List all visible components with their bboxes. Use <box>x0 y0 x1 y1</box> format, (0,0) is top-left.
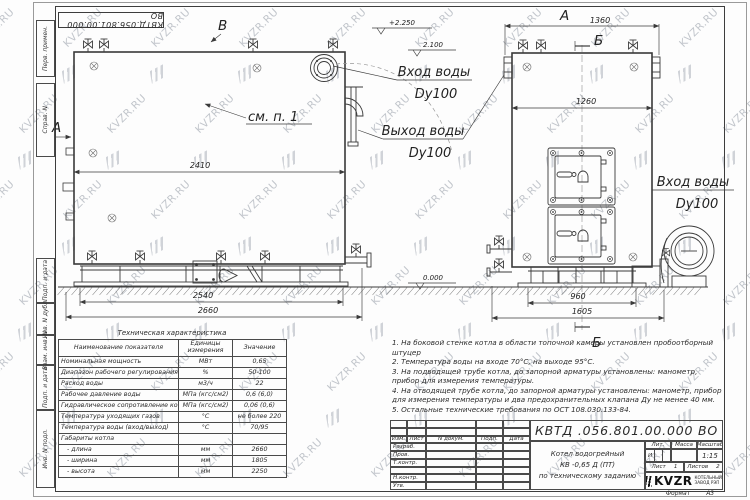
table-row: Температура воды (вход/выход)°С70/95 <box>59 423 287 434</box>
view-label-a-front: А <box>559 8 569 24</box>
signature-cell <box>476 451 503 459</box>
table-cell: - ширина <box>59 456 179 467</box>
valve-icon <box>629 40 638 53</box>
revision-cell <box>426 420 476 428</box>
sheet-value: 1 <box>674 464 678 470</box>
tech-characteristics: Техническая характеристика Наименование … <box>58 329 286 478</box>
table-cell: 2660 <box>233 445 287 456</box>
drawing-labels: А В см. п. 1 2410 2540 2660 Вход воды Dy… <box>51 8 729 351</box>
table-cell: 50-100 <box>233 368 287 379</box>
table-cell: Температура уходящих газов <box>59 412 179 423</box>
signature-cell <box>426 451 476 459</box>
note-line: 1. На боковой стенке котла в области топ… <box>392 338 724 357</box>
table-cell: МПа (кгс/см2) <box>179 401 233 412</box>
table-row: Рабочее давление водыМПа (кгс/см2)0,6 (6… <box>59 390 287 401</box>
lit-value: И <box>645 449 671 462</box>
table-cell <box>233 434 287 445</box>
notes-block: 1. На боковой стенке котла в области топ… <box>392 338 724 414</box>
note-line: 4. На отводящей трубе котла, до запорной… <box>392 386 724 405</box>
sheet-cell: Лист 1 <box>645 462 684 472</box>
revision-cell: Изм. <box>390 436 407 444</box>
sheet-label: Лист <box>652 464 666 470</box>
table-header-cell: Значение <box>233 340 287 357</box>
dim-1260: 1260 <box>576 97 596 106</box>
signature-row-label <box>390 467 426 475</box>
margin-stamp: Подп. и дата <box>36 365 55 410</box>
inlet-water-label: Вход воды <box>398 65 471 80</box>
dim-1605: 1605 <box>572 307 592 316</box>
table-cell: % <box>179 368 233 379</box>
table-cell: 0,06 (0,6) <box>233 401 287 412</box>
mass-value <box>671 449 697 462</box>
inlet-water-dn-front: Dy100 <box>676 197 719 212</box>
signature-cell <box>476 443 503 451</box>
view-label-v: В <box>218 18 227 34</box>
revision-cell <box>503 428 530 436</box>
table-cell: Расход воды <box>59 379 179 390</box>
format-row: Формат А3 <box>655 490 725 497</box>
table-row: Габариты котла <box>59 434 287 445</box>
product-name-line: по техническому заданию <box>539 471 636 482</box>
valve-icon <box>217 251 226 264</box>
table-cell: 22 <box>233 379 287 390</box>
safety-pipe <box>345 87 363 146</box>
table-header-row: Наименование показателя Единицы измерени… <box>59 340 287 357</box>
inlet-flange <box>311 55 338 82</box>
revision-cell <box>407 420 426 428</box>
valve-icon <box>136 251 145 264</box>
note-line: 2. Температура воды на входе 70°С, на вы… <box>392 357 724 367</box>
table-cell: 70/95 <box>233 423 287 434</box>
drain-valves <box>487 236 512 276</box>
signature-row-label: Т.контр. <box>390 459 426 467</box>
margin-stamp: Инв. N подл. <box>36 410 55 488</box>
note-line: 5. Остальные технические требования по О… <box>392 405 724 415</box>
doc-number: КВТД .056.801.00.000 ВО <box>530 420 723 441</box>
margin-stamp: Подп. и дата <box>36 258 55 303</box>
sheets-label: Листов <box>687 464 708 470</box>
table-cell: 0,6 (6,0) <box>233 390 287 401</box>
product-name-line: КВ -0,65 Д (ПТ) <box>560 460 615 471</box>
furnace-door-upper <box>548 148 615 205</box>
valve-icon <box>537 40 546 53</box>
signature-row-label: Н.контр. <box>390 474 426 482</box>
table-cell: Номинальная мощность <box>59 357 179 368</box>
signature-row-label: Разраб. <box>390 443 426 451</box>
valve-icon <box>84 39 93 52</box>
sheets-cell: Листов 2 <box>684 462 723 472</box>
table-row: - ширинамм1805 <box>59 456 287 467</box>
dim-1360: 1360 <box>590 16 610 25</box>
valve-icon <box>88 251 97 264</box>
table-cell: Диапазон рабочего регулирования <box>59 368 179 379</box>
table-row: Номинальная мощностьМВт0,65 <box>59 357 287 368</box>
margin-stamp-label: Справ. N <box>42 106 49 133</box>
inverted-doc-number-stamp: КВТД.056.801.00.000 ВО <box>58 12 164 28</box>
revision-cell: Подп. <box>476 436 503 444</box>
title-block: Изм.ЛистN докум.Подп.ДатаРазраб.Пров.Т.к… <box>390 420 723 490</box>
table-cell: мм <box>179 467 233 478</box>
company-name: КОТЕЛЬНЫЙ ЗАВОД РЭП <box>695 476 722 486</box>
product-name-line: Котел водогрейный <box>551 449 625 460</box>
inlet-water-dn: Dy100 <box>415 87 458 102</box>
signature-cell <box>476 459 503 467</box>
revision-cell: N докум. <box>426 436 476 444</box>
table-cell: МВт <box>179 357 233 368</box>
valve-icon <box>100 39 109 52</box>
table-cell: Гидравлическое сопротивление котла <box>59 401 179 412</box>
signature-cell <box>476 467 503 475</box>
scale-value: 1:15 <box>697 449 723 462</box>
revision-cell <box>476 428 503 436</box>
table-cell: МПа (кгс/см2) <box>179 390 233 401</box>
outlet-water-label: Выход воды <box>382 124 465 139</box>
revision-cell <box>390 420 407 428</box>
table-cell: °С <box>179 412 233 423</box>
boiler-body-side <box>74 52 345 264</box>
table-cell: - длина <box>59 445 179 456</box>
table-row: - высотамм2250 <box>59 467 287 478</box>
signature-cell <box>503 474 530 482</box>
revision-cell: Дата <box>503 436 530 444</box>
signature-cell <box>503 482 530 490</box>
margin-stamp-label: Подп. и дата <box>42 367 49 408</box>
signature-cell <box>426 459 476 467</box>
revision-cell <box>426 428 476 436</box>
dim-2410: 2410 <box>190 161 210 170</box>
margin-stamp: Справ. N <box>36 83 55 157</box>
furnace-door-lower <box>548 207 615 264</box>
tech-table: Наименование показателя Единицы измерени… <box>58 339 287 478</box>
table-cell: Рабочее давление воды <box>59 390 179 401</box>
elev-2250: +2.250 <box>389 19 415 27</box>
revision-cell <box>390 428 407 436</box>
signature-cell <box>426 443 476 451</box>
margin-stamp-label: Взам. инв. N <box>42 331 49 370</box>
kvzr-logo-icon <box>646 476 652 487</box>
revision-cell <box>476 420 503 428</box>
signature-cell <box>503 459 530 467</box>
signature-cell <box>426 482 476 490</box>
margin-stamp-label: Перв. примен. <box>42 26 49 71</box>
blower-fan <box>632 226 714 287</box>
table-cell: - высота <box>59 467 179 478</box>
valve-icon <box>329 39 338 52</box>
margin-stamp: Перв. примен. <box>36 20 55 77</box>
table-row: Температура уходящих газов°Сне более 220 <box>59 412 287 423</box>
section-label-b-top: Б <box>594 33 603 49</box>
table-cell: 0,65 <box>233 357 287 368</box>
valve-icon <box>519 40 528 53</box>
valve-icon <box>249 39 258 52</box>
tech-table-title: Техническая характеристика <box>58 329 286 337</box>
table-cell: 1805 <box>233 456 287 467</box>
signature-cell <box>426 474 476 482</box>
table-cell <box>179 434 233 445</box>
table-header-cell: Наименование показателя <box>59 340 179 357</box>
signature-cell <box>503 467 530 475</box>
dim-960: 960 <box>570 292 585 301</box>
table-cell: °С <box>179 423 233 434</box>
margin-stamp-label: Подп. и дата <box>42 260 49 301</box>
signature-cell <box>503 451 530 459</box>
margin-stamp-label: Инв. N подл. <box>42 429 49 469</box>
table-cell: Температура воды (вход/выход) <box>59 423 179 434</box>
lit-header: Лит. <box>645 441 671 449</box>
note-line: 3. На подводящей трубе котла, до запорно… <box>392 367 724 386</box>
table-cell: не более 220 <box>233 412 287 423</box>
signature-cell <box>426 467 476 475</box>
elev-2100: 2.100 <box>423 41 444 49</box>
format-label: Формат <box>666 490 690 497</box>
revision-cell <box>407 428 426 436</box>
burner-cone <box>219 269 237 282</box>
format-value: А3 <box>706 490 714 497</box>
ground-hatch <box>58 288 702 296</box>
signature-cell <box>476 474 503 482</box>
table-row: Диапазон рабочего регулирования%50-100 <box>59 368 287 379</box>
company-logo-text: KVZR <box>654 474 693 488</box>
signature-cell <box>503 443 530 451</box>
valve-icon <box>261 251 270 264</box>
table-row: Расход водым3/ч22 <box>59 379 287 390</box>
revision-cell: Лист <box>407 436 426 444</box>
elev-0000: 0.000 <box>423 274 444 282</box>
table-cell: Габариты котла <box>59 434 179 445</box>
margin-stamp: Взам. инв. N <box>36 335 55 365</box>
outlet-water-dn: Dy100 <box>409 146 452 161</box>
see-note-label: см. п. 1 <box>248 110 298 125</box>
dim-2540: 2540 <box>193 291 213 300</box>
mass-header: Масса <box>671 441 697 449</box>
product-name: Котел водогрейный КВ -0,65 Д (ПТ) по тех… <box>530 441 645 490</box>
table-row: - длинамм2660 <box>59 445 287 456</box>
dim-2660: 2660 <box>198 306 218 315</box>
table-cell: 2250 <box>233 467 287 478</box>
valve-icon <box>352 244 361 257</box>
sheets-value: 2 <box>716 464 720 470</box>
inlet-water-label-front: Вход воды <box>657 175 730 190</box>
signature-row-label: Пров. <box>390 451 426 459</box>
revision-cell <box>503 420 530 428</box>
signature-row-label: Утв. <box>390 482 426 490</box>
side-view <box>63 39 452 286</box>
scale-header: Масштаб <box>697 441 723 449</box>
table-cell: м3/ч <box>179 379 233 390</box>
table-row: Гидравлическое сопротивление котлаМПа (к… <box>59 401 287 412</box>
table-cell: мм <box>179 456 233 467</box>
company-cell: KVZR КОТЕЛЬНЫЙ ЗАВОД РЭП <box>645 472 723 490</box>
table-header-cell: Единицы измерения <box>179 340 233 357</box>
signature-cell <box>476 482 503 490</box>
table-cell: мм <box>179 445 233 456</box>
